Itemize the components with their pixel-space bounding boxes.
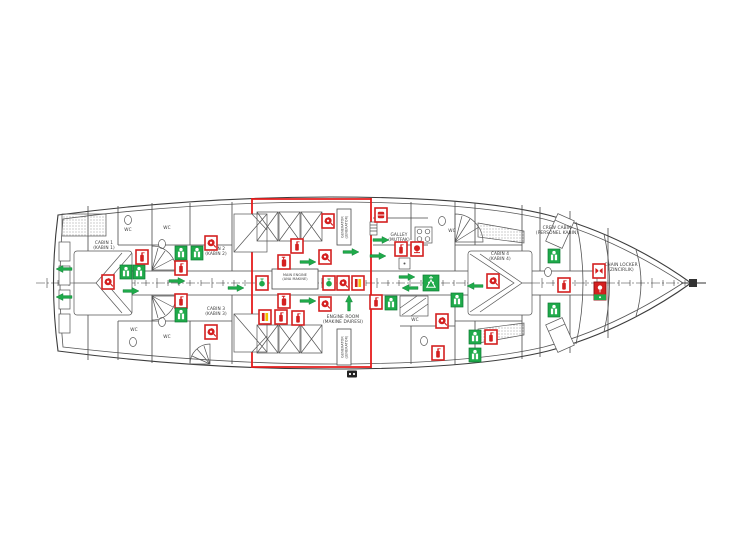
fire-extinguisher-icon — [370, 295, 382, 309]
lifejacket-icon — [469, 348, 481, 362]
fire-alarm-bell-icon — [411, 242, 423, 256]
room-label-wc-5: WC — [448, 228, 455, 234]
escape-route-arrow-icon — [370, 253, 386, 260]
room-label-engine-room: ENGINE ROOM(MAKINE DAIRESI) — [323, 314, 363, 325]
lifejacket-icon — [469, 330, 481, 344]
escape-route-arrow-icon — [169, 278, 185, 285]
fire-extinguisher-icon — [136, 250, 148, 264]
room-label-wc-3: WC — [130, 327, 137, 333]
fire-hose-reel-icon — [319, 250, 331, 264]
lifejacket-icon — [120, 265, 132, 279]
co2-extinguisher-bottle-icon — [278, 294, 290, 308]
escape-route-arrow-icon — [399, 274, 415, 281]
fire-damper-icon — [593, 264, 605, 278]
bowsprit-fitting — [689, 279, 697, 287]
lifejacket-icon — [548, 249, 560, 263]
fire-hose-reel-icon — [205, 325, 217, 339]
foam-applicator-icon — [352, 276, 364, 290]
emergency-escape-breathing-device-icon — [594, 282, 606, 300]
escape-route-arrow-icon — [343, 249, 359, 256]
fire-hose-reel-icon — [436, 314, 448, 328]
lifejacket-icon — [175, 308, 187, 322]
fire-extinguisher-icon — [175, 294, 187, 308]
room-label-chain-locker: CHAIN LOCKER(ZINCIRLIK) — [604, 262, 637, 273]
fire-extinguisher-icon — [291, 239, 303, 253]
fire-extinguisher-icon — [175, 261, 187, 275]
escape-route-arrow-icon — [300, 259, 316, 266]
lifejacket-icon — [191, 246, 203, 260]
fire-hose-reel-icon — [319, 297, 331, 311]
escape-route-arrow-icon — [300, 298, 316, 305]
escape-route-arrow-icon — [346, 295, 353, 311]
room-label-cabin-1: CABIN 1(KABIN 1) — [93, 240, 115, 251]
lifejacket-icon — [133, 265, 145, 279]
lifejacket-icon — [451, 293, 463, 307]
deck-plan-svg: CABIN 1(KABIN 1)WCWCCABIN 2(KABIN 2)CABI… — [0, 0, 743, 557]
fire-extinguisher-icon — [558, 278, 570, 292]
escape-route-arrow-icon — [373, 237, 389, 244]
room-label-wc-6: WC — [411, 317, 418, 323]
fire-extinguisher-icon — [432, 346, 444, 360]
fire-blanket-icon — [375, 208, 387, 222]
fire-hose-reel-icon — [205, 236, 217, 250]
room-label-wc-4: WC — [163, 334, 170, 340]
fire-extinguisher-icon — [485, 330, 497, 344]
foam-applicator-icon — [259, 310, 271, 324]
room-label-wc-1: WC — [124, 227, 131, 233]
assembly-muster-station-icon — [423, 275, 439, 291]
emergency-shutoff-valve-icon — [323, 276, 335, 290]
fire-hose-reel-icon — [322, 214, 334, 228]
fire-hose-reel-icon — [337, 276, 349, 290]
international-shore-connection-icon — [347, 371, 357, 378]
fire-extinguisher-icon — [292, 311, 304, 325]
fire-hose-reel-icon — [487, 274, 499, 288]
room-label-wc-2: WC — [163, 225, 170, 231]
room-label-generator-2: GENERATOR(JENERATOR) — [340, 335, 348, 359]
room-label-cabin-3: CABIN 3(KABIN 3) — [205, 306, 227, 317]
fire-extinguisher-icon — [275, 310, 287, 324]
room-label-cabin-4: CABIN 4(KABIN 4) — [489, 251, 511, 262]
room-label-main-engine: MAIN ENGINE(ANA MAKINE) — [282, 273, 308, 281]
lifejacket-icon — [175, 246, 187, 260]
fire-extinguisher-icon — [395, 242, 407, 256]
lifejacket-icon — [385, 296, 397, 310]
lifejacket-icon — [548, 303, 560, 317]
deck-plan-canvas: CABIN 1(KABIN 1)WCWCCABIN 2(KABIN 2)CABI… — [0, 0, 743, 557]
co2-extinguisher-bottle-icon — [278, 255, 290, 269]
fire-hose-reel-icon — [102, 275, 114, 289]
escape-route-arrow-icon — [228, 285, 244, 292]
room-label-generator-1: GENERATOR(JENERATOR) — [340, 215, 348, 239]
emergency-shutoff-valve-icon — [256, 276, 268, 290]
